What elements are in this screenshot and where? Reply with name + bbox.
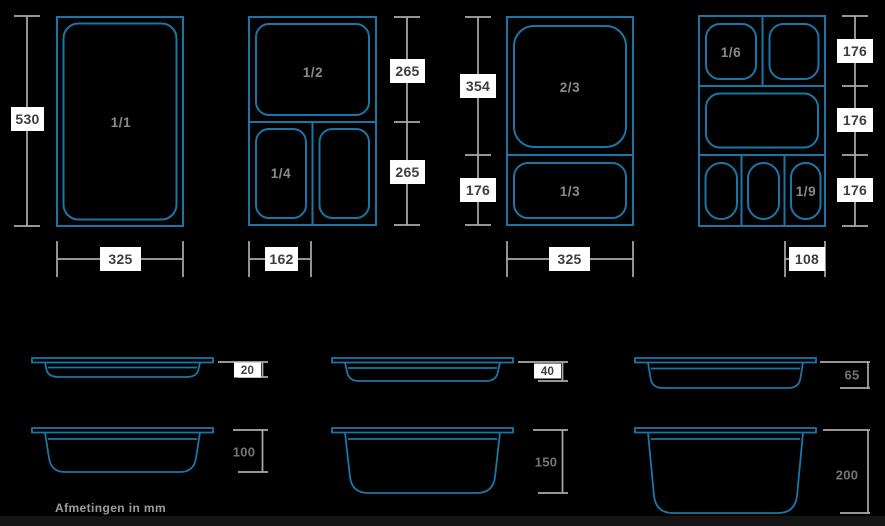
pan-rim [32,428,213,433]
dimension-label: 265 [395,63,419,79]
gastronorm-dimensions-diagram: 1/1 530 325 1/2 1/4 265 265 [0,0,885,526]
pan-size-label: 1/4 [271,166,292,181]
top-view-gn-2-3-1-3: 2/3 1/3 354 176 325 [460,17,633,277]
top-view-gn-1-1: 1/1 530 325 [11,16,183,277]
pan-rim [635,428,816,433]
pan-rim [32,358,213,363]
height-dimension: 530 [11,16,44,226]
pan-body [648,363,803,389]
dimension-label: 65 [844,368,859,383]
dimension-label: 325 [557,251,581,267]
width-dimension: 162 [249,241,311,277]
side-view-depth-40: 40 [332,358,568,381]
dimension-line [394,17,420,225]
dimension-label: 176 [843,182,867,198]
width-dimension: 325 [507,241,633,277]
pan-inset-third [706,94,818,148]
dimension-label: 176 [466,182,490,198]
pan-rim [332,358,513,363]
depth-dimension: 200 [823,430,870,513]
width-dimension: 108 [785,241,825,277]
top-view-gn-1-6-1-9: 1/6 1/9 176 176 176 108 [699,16,873,277]
pan-body [345,433,500,494]
height-dimension: 354 176 [460,17,496,225]
pan-inset-sixth [770,24,819,79]
pan-rim [332,428,513,433]
diagram-canvas: 1/1 530 325 1/2 1/4 265 265 [0,0,885,526]
side-view-depth-150: 150 [332,428,568,493]
pan-size-label: 1/2 [303,65,324,80]
dimension-label: 150 [535,455,558,470]
dimension-label: 265 [395,164,419,180]
depth-dimension: 100 [233,430,268,472]
height-dimension: 176 176 176 [837,16,873,226]
dimension-label: 162 [269,251,293,267]
depth-dimension: 150 [533,430,568,493]
side-view-depth-65: 65 [635,358,870,388]
height-dimension: 265 265 [390,17,425,225]
side-view-depth-200: 200 [635,428,870,513]
pan-rim [635,358,816,363]
pan-inset-quarter [320,129,370,218]
depth-dimension: 20 [218,362,268,378]
depth-dimension: 65 [820,362,870,388]
dimension-label: 20 [241,365,254,377]
footer-bar [0,516,885,526]
pan-size-label: 1/9 [796,184,817,199]
dimension-label: 108 [795,251,819,267]
pan-size-label: 1/1 [111,115,132,130]
dimension-label: 354 [466,78,490,94]
units-footnote: Afmetingen in mm [55,501,166,515]
dimension-label: 530 [15,111,39,127]
pan-dividers [249,122,376,225]
dimension-label: 40 [541,366,554,378]
depth-dimension: 40 [518,362,568,381]
pan-body [345,363,500,382]
top-view-gn-1-2-1-4: 1/2 1/4 265 265 162 [249,17,425,277]
pan-inset-ninth [748,163,779,219]
pan-inset-ninth [706,163,738,219]
dimension-label: 200 [836,468,859,483]
pan-body [648,433,803,514]
pan-size-label: 1/6 [721,45,742,60]
dimension-label: 100 [233,445,256,460]
side-view-depth-100: 100 [32,428,268,472]
dimension-label: 325 [108,251,132,267]
pan-size-label: 2/3 [560,80,581,95]
dimension-label: 176 [843,43,867,59]
width-dimension: 325 [57,241,183,277]
pan-body [45,363,200,378]
side-view-depth-20: 20 [32,358,268,378]
pan-size-label: 1/3 [560,184,581,199]
dimension-label: 176 [843,112,867,128]
